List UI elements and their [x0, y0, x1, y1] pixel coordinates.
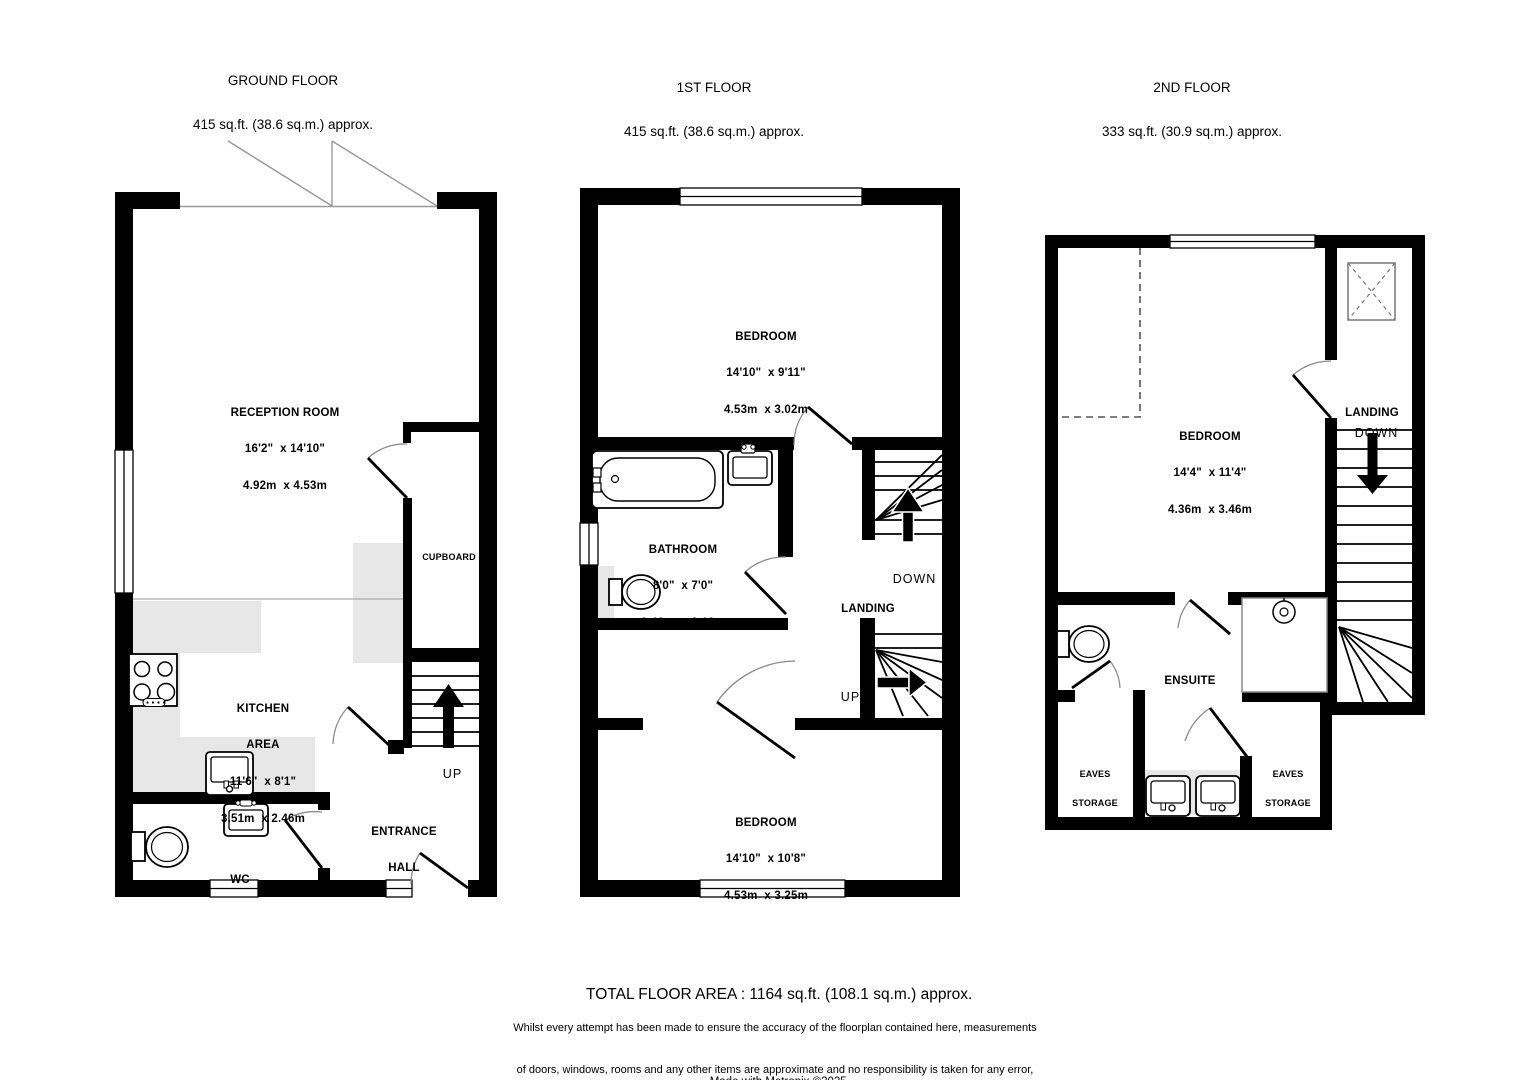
- room-dims-ft: 14'10" x 10'8": [724, 853, 808, 865]
- shower-symbol: [1242, 598, 1327, 692]
- eaves-storage-right-label: EAVES STORAGE: [1265, 750, 1311, 819]
- bedroom2-label: BEDROOM 14'10" x 10'8" 4.53m x 3.25m: [724, 792, 808, 915]
- room-dims-ft: 8'0" x 7'0": [641, 580, 725, 592]
- room-dims-ft: 14'4" x 11'4": [1168, 467, 1252, 479]
- second-floor-window: [1170, 235, 1315, 248]
- wc-label: WC: [230, 849, 250, 898]
- metropix-credit: Made with Metropix ©2025: [703, 1064, 846, 1080]
- ground-floor-plan: [115, 141, 497, 897]
- ensuite-sink-right-symbol: [1196, 776, 1240, 816]
- bedroom1-label: BEDROOM 14'10" x 9'11" 4.53m x 3.02m: [724, 306, 808, 429]
- reduced-headroom-line: [1058, 248, 1140, 417]
- bifold-door-symbol: [180, 141, 437, 207]
- floor-area: 415 sq.ft. (38.6 sq.m.) approx.: [193, 118, 373, 133]
- room-name: HALL: [371, 862, 437, 874]
- room-name: KITCHEN: [221, 703, 305, 715]
- second-floor-stairs-down: [1337, 430, 1412, 702]
- room-dims-m: 3.51m x 2.46m: [221, 813, 305, 825]
- first-floor-title: 1ST FLOOR 415 sq.ft. (38.6 sq.m.) approx…: [624, 52, 804, 154]
- landing-label: LANDING: [841, 578, 895, 627]
- floor-area: 415 sq.ft. (38.6 sq.m.) approx.: [624, 125, 804, 140]
- room-dims-m: 2.43m x 2.13m: [641, 617, 725, 629]
- bedroom3-label: BEDROOM 14'4" x 11'4" 4.36m x 3.46m: [1168, 406, 1252, 529]
- room-name: EAVES: [1265, 770, 1311, 780]
- first-floor-plan: [580, 188, 960, 897]
- room-name: STORAGE: [1072, 799, 1118, 809]
- floorplan-page: GROUND FLOOR 415 sq.ft. (38.6 sq.m.) app…: [0, 0, 1539, 1080]
- room-name: BEDROOM: [1168, 431, 1252, 443]
- ground-floor-title: GROUND FLOOR 415 sq.ft. (38.6 sq.m.) app…: [193, 45, 373, 147]
- bathroom-sink-symbol: [728, 444, 772, 485]
- room-dims-ft: 11'6" x 8'1": [221, 776, 305, 788]
- bathroom-label: BATHROOM 8'0" x 7'0" 2.43m x 2.13m: [641, 519, 725, 642]
- up-arrow-shaft: [443, 705, 454, 748]
- floor-name: GROUND FLOOR: [193, 74, 373, 89]
- wc-toilet-symbol: [131, 827, 188, 867]
- floor-area: 333 sq.ft. (30.9 sq.m.) approx.: [1102, 125, 1282, 140]
- up-label: UP: [434, 753, 462, 781]
- room-dims-m: 4.53m x 3.25m: [724, 890, 808, 902]
- room-name: CUPBOARD: [422, 553, 476, 563]
- down-arrow-head: [1357, 475, 1388, 494]
- skylight-symbol: [1348, 263, 1395, 320]
- down-label: DOWN: [1346, 412, 1399, 440]
- room-dims-ft: 16'2" x 14'10": [231, 443, 340, 455]
- room-name: LANDING: [841, 603, 895, 615]
- room-name: ENSUITE: [1164, 675, 1215, 687]
- floor-name: 1ST FLOOR: [624, 81, 804, 96]
- room-name: STORAGE: [1265, 799, 1311, 809]
- room-name: BEDROOM: [724, 817, 808, 829]
- hob-symbol: [129, 654, 177, 707]
- up-label: UP: [832, 676, 860, 704]
- room-name: ENTRANCE: [371, 826, 437, 838]
- second-floor-plan: [1045, 235, 1425, 830]
- room-name: BATHROOM: [641, 544, 725, 556]
- room-dims-m: 4.36m x 3.46m: [1168, 504, 1252, 516]
- room-name: WC: [230, 874, 250, 886]
- ensuite-toilet-symbol: [1057, 626, 1109, 662]
- up-arrow-head: [433, 684, 464, 707]
- cupboard-label: CUPBOARD: [422, 533, 476, 572]
- room-dims-m: 4.53m x 3.02m: [724, 404, 808, 416]
- ensuite-sink-left-symbol: [1146, 776, 1190, 816]
- first-floor-stairs-up: [875, 634, 942, 716]
- room-dims-m: 4.92m x 4.53m: [231, 480, 340, 492]
- eaves-storage-left-label: EAVES STORAGE: [1072, 750, 1118, 819]
- first-floor-stairs-down: [875, 455, 942, 542]
- room-name: RECEPTION ROOM: [231, 407, 340, 419]
- room-name: AREA: [221, 739, 305, 751]
- ensuite-label: ENSUITE: [1164, 650, 1215, 699]
- ground-floor-stairs-up: [412, 676, 479, 748]
- kitchen-area-label: KITCHEN AREA 11'6" x 8'1" 3.51m x 2.46m: [221, 678, 305, 838]
- floorplan-drawing: [0, 0, 1539, 1080]
- entrance-hall-label: ENTRANCE HALL: [371, 801, 437, 887]
- second-floor-title: 2ND FLOOR 333 sq.ft. (30.9 sq.m.) approx…: [1102, 52, 1282, 154]
- bath-symbol: [592, 451, 723, 508]
- room-name: BEDROOM: [724, 331, 808, 343]
- reception-room-label: RECEPTION ROOM 16'2" x 14'10" 4.92m x 4.…: [231, 382, 340, 505]
- room-dims-ft: 14'10" x 9'11": [724, 367, 808, 379]
- floor-name: 2ND FLOOR: [1102, 81, 1282, 96]
- room-name: EAVES: [1072, 770, 1118, 780]
